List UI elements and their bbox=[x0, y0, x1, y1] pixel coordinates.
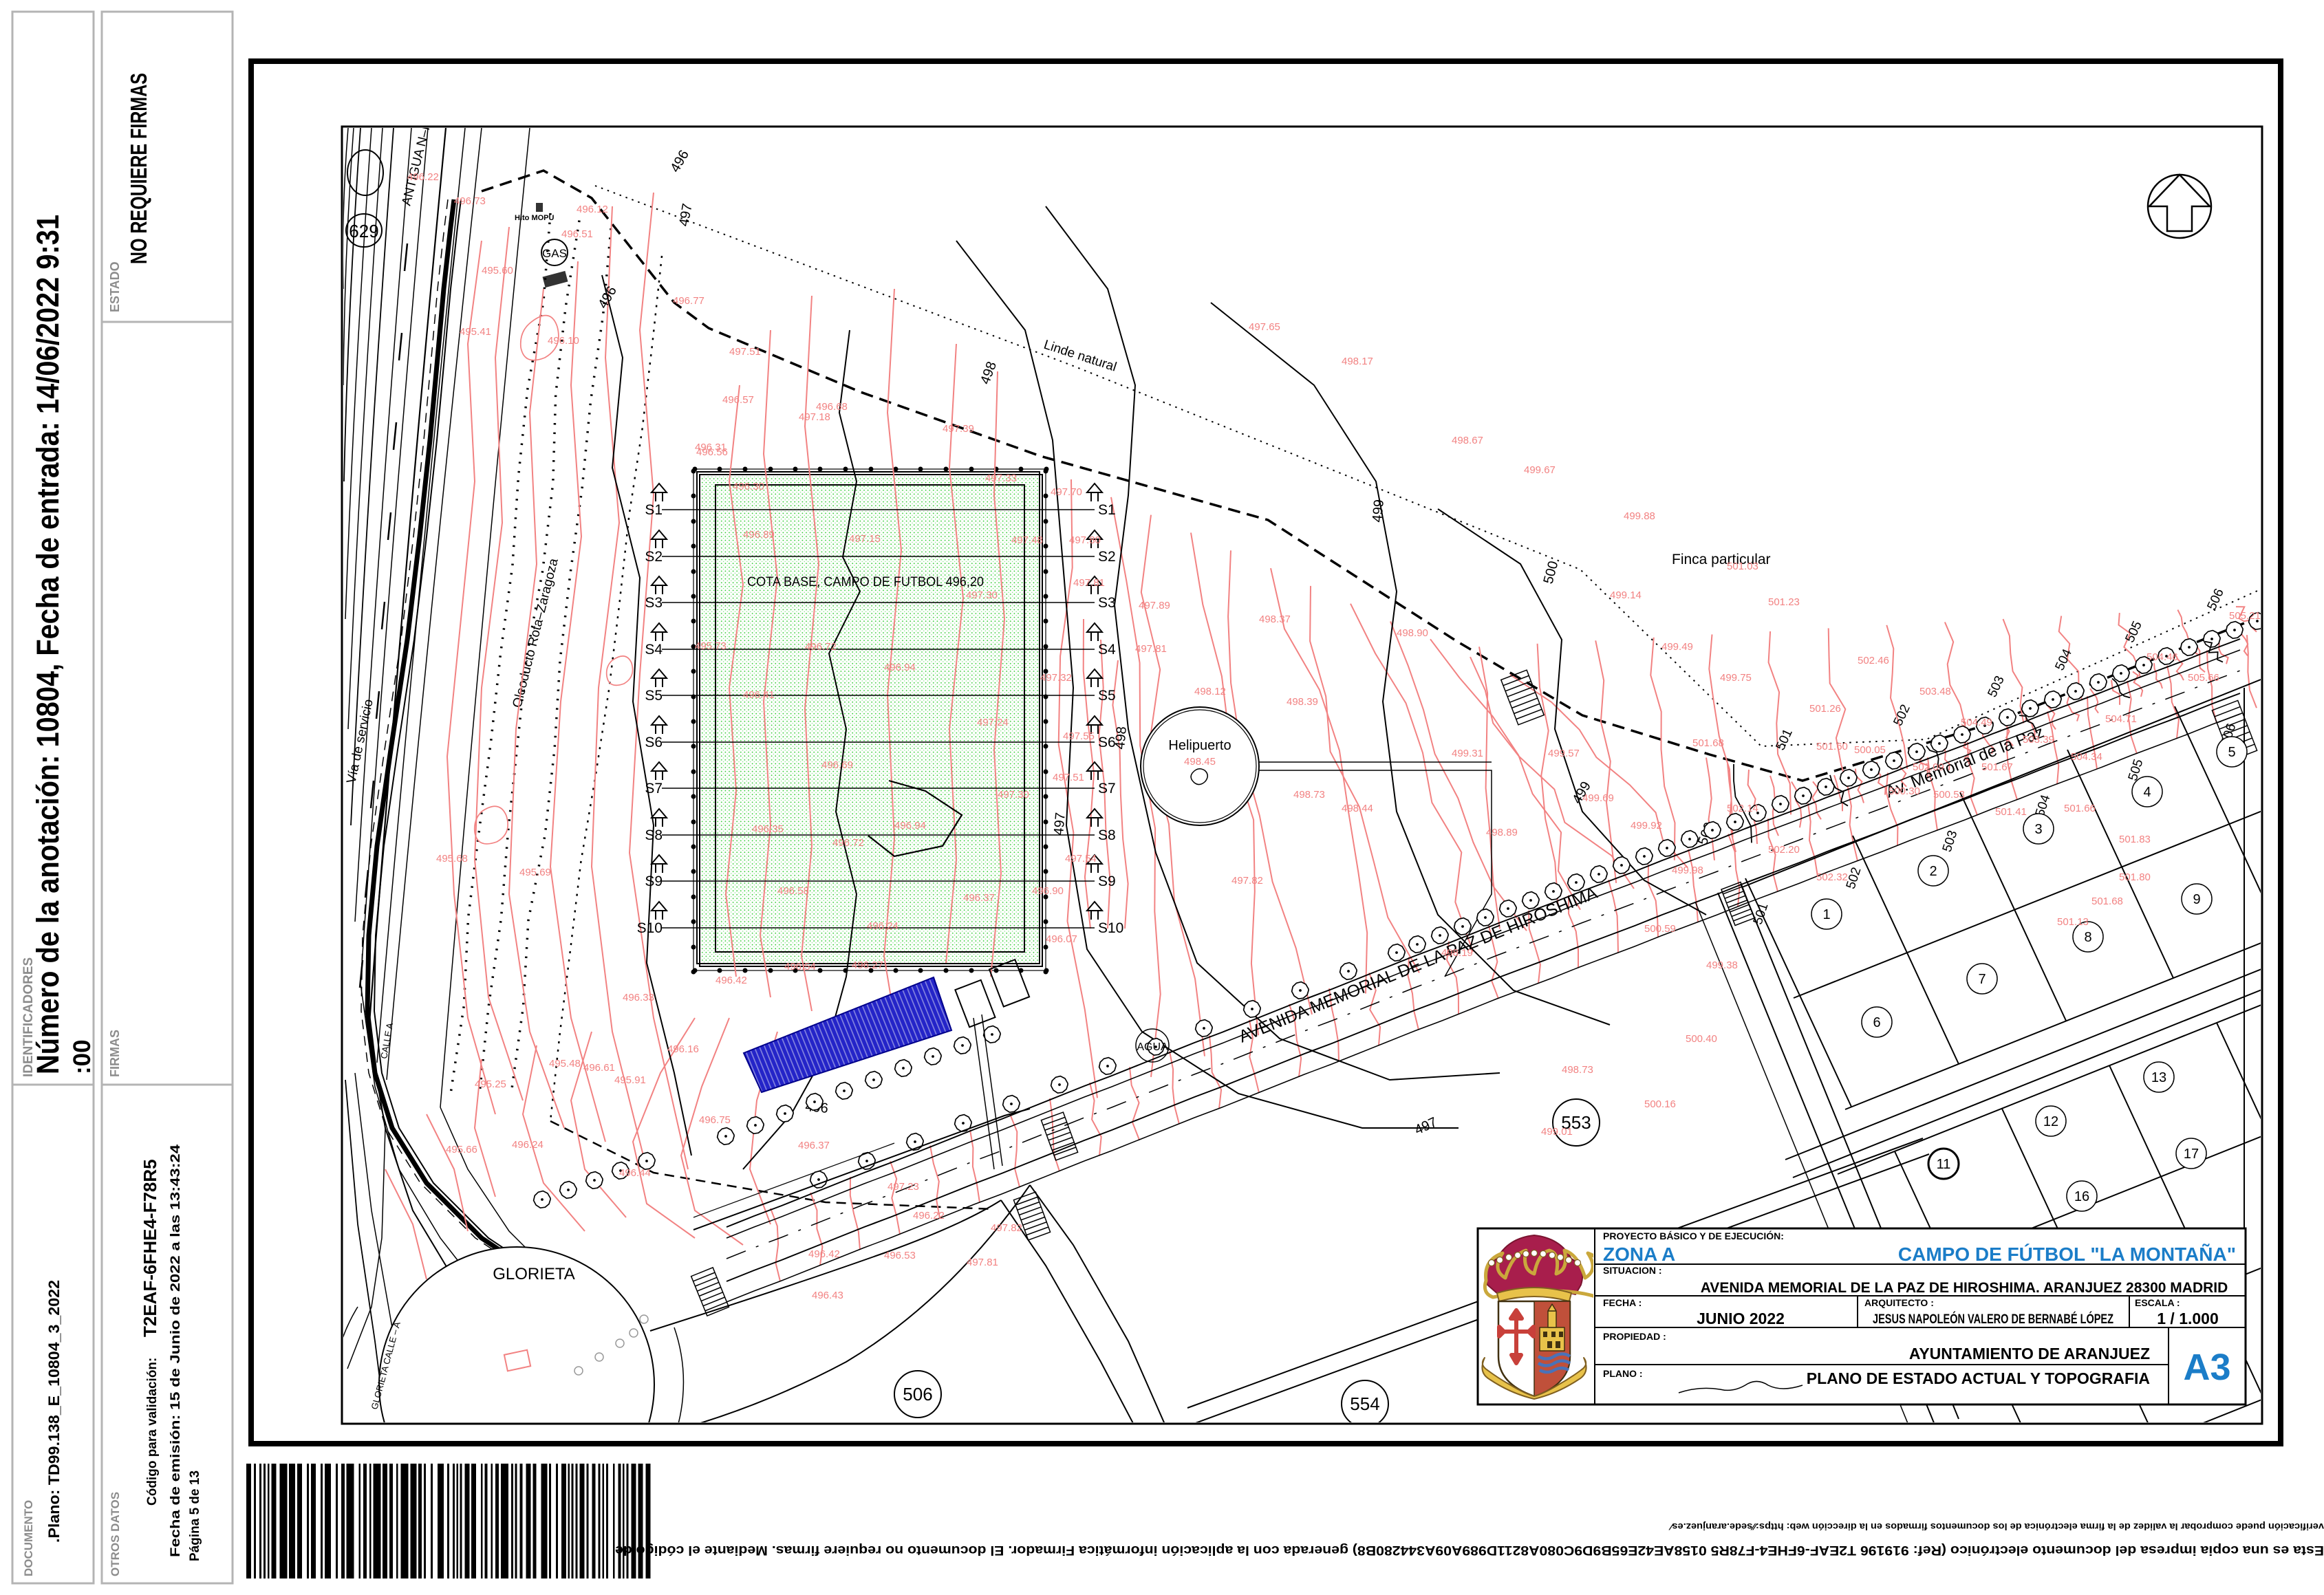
svg-text:496.07: 496.07 bbox=[1046, 933, 1077, 945]
svg-text:11: 11 bbox=[1937, 1157, 1951, 1172]
svg-text:FECHA :: FECHA : bbox=[1603, 1297, 1642, 1308]
svg-text:505.66: 505.66 bbox=[2188, 672, 2219, 684]
svg-text:497.82: 497.82 bbox=[1231, 875, 1263, 887]
svg-text:501.80: 501.80 bbox=[2119, 871, 2151, 883]
svg-text:497.51: 497.51 bbox=[1053, 772, 1084, 783]
svg-text::00: :00 bbox=[69, 1039, 96, 1074]
svg-text:499.14: 499.14 bbox=[1610, 589, 1642, 601]
svg-text:496.44: 496.44 bbox=[619, 1167, 651, 1179]
svg-text:495.60: 495.60 bbox=[482, 265, 513, 276]
svg-text:501.26: 501.26 bbox=[1809, 703, 1841, 715]
svg-text:ESTADO: ESTADO bbox=[108, 261, 122, 312]
svg-text:496.72: 496.72 bbox=[805, 641, 837, 653]
svg-text:Código para validación:: Código para validación: bbox=[145, 1358, 160, 1506]
svg-text:496.90: 496.90 bbox=[1032, 885, 1064, 897]
svg-text:496.30: 496.30 bbox=[733, 481, 764, 492]
svg-text:499.75: 499.75 bbox=[1720, 672, 1752, 684]
svg-text:496.43: 496.43 bbox=[812, 1290, 843, 1301]
svg-text:496.61: 496.61 bbox=[583, 1062, 615, 1074]
svg-text:501.13: 501.13 bbox=[2057, 916, 2089, 928]
svg-text:497.81: 497.81 bbox=[967, 1257, 998, 1268]
svg-text:497.81: 497.81 bbox=[1073, 577, 1105, 589]
svg-text:504.34: 504.34 bbox=[2071, 751, 2102, 763]
svg-text:502.09: 502.09 bbox=[1913, 761, 1944, 773]
svg-text:501.60: 501.60 bbox=[1816, 741, 1848, 752]
svg-text:503.39: 503.39 bbox=[2023, 734, 2054, 746]
svg-text:4: 4 bbox=[2143, 785, 2151, 800]
svg-text:498.45: 498.45 bbox=[1184, 756, 1216, 768]
svg-text:Fecha de emisión: 15 de Junio: Fecha de emisión: 15 de Junio de 2022 a … bbox=[169, 1144, 183, 1557]
svg-text:12: 12 bbox=[2043, 1114, 2058, 1129]
svg-text:COTA BASE, CAMPO DE FUTBOL 496: COTA BASE, CAMPO DE FUTBOL 496,20 bbox=[747, 575, 984, 589]
svg-text:PLANO :: PLANO : bbox=[1603, 1368, 1643, 1379]
svg-text:499.49: 499.49 bbox=[1661, 641, 1693, 653]
svg-text:501.67: 501.67 bbox=[1981, 761, 2013, 773]
svg-text:A3: A3 bbox=[2183, 1347, 2230, 1388]
svg-text:499.98: 499.98 bbox=[1672, 865, 1703, 876]
svg-text:496.77: 496.77 bbox=[673, 295, 704, 307]
svg-text:506: 506 bbox=[903, 1384, 932, 1404]
svg-text:495.73: 495.73 bbox=[695, 640, 727, 652]
svg-text:16: 16 bbox=[2074, 1189, 2089, 1204]
svg-text:PROPIEDAD :: PROPIEDAD : bbox=[1603, 1331, 1666, 1342]
svg-text:497.18: 497.18 bbox=[799, 411, 830, 423]
svg-text:496.24: 496.24 bbox=[867, 920, 899, 932]
svg-text:6: 6 bbox=[1873, 1015, 1880, 1030]
svg-text:496.37: 496.37 bbox=[798, 1140, 830, 1151]
svg-text:498.67: 498.67 bbox=[1452, 435, 1483, 446]
svg-text:495.48: 495.48 bbox=[549, 1058, 581, 1070]
svg-text:499.92: 499.92 bbox=[1631, 820, 1662, 832]
svg-text:497.39: 497.39 bbox=[943, 423, 974, 435]
svg-text:497.82: 497.82 bbox=[991, 1222, 1022, 1234]
svg-text:496.51: 496.51 bbox=[561, 228, 593, 240]
svg-text:S1: S1 bbox=[645, 502, 663, 518]
svg-text:497: 497 bbox=[1051, 812, 1068, 836]
svg-text:504.46: 504.46 bbox=[2147, 651, 2178, 663]
svg-text:AGUA: AGUA bbox=[1137, 1041, 1168, 1053]
svg-text:497.33: 497.33 bbox=[985, 473, 1017, 484]
svg-text:AYUNTAMIENTO DE ARANJUEZ: AYUNTAMIENTO DE ARANJUEZ bbox=[1909, 1345, 2150, 1363]
svg-text:498.44: 498.44 bbox=[1342, 803, 1373, 814]
svg-text:2: 2 bbox=[1929, 864, 1937, 879]
svg-text:NO REQUIERE FIRMAS: NO REQUIERE FIRMAS bbox=[126, 73, 151, 264]
svg-text:497.65: 497.65 bbox=[1249, 321, 1280, 333]
svg-text:499.88: 499.88 bbox=[1624, 510, 1655, 522]
svg-text:496.12: 496.12 bbox=[577, 204, 608, 215]
svg-text:503.48: 503.48 bbox=[1919, 686, 1951, 697]
svg-text:JESUS NAPOLEÓN VALERO DE BERNA: JESUS NAPOLEÓN VALERO DE BERNABÉ LÓPEZ bbox=[1873, 1312, 2113, 1327]
svg-text:501.66: 501.66 bbox=[2064, 803, 2096, 814]
svg-text:AVENIDA MEMORIAL DE LA PAZ DE: AVENIDA MEMORIAL DE LA PAZ DE HIROSHIMA.… bbox=[1701, 1280, 2228, 1296]
svg-text:verificación puede comprobar l: verificación puede comprobar la validez … bbox=[1668, 1521, 2324, 1532]
svg-text:Hito MOPU: Hito MOPU bbox=[515, 214, 554, 222]
svg-text:3: 3 bbox=[2034, 822, 2042, 837]
svg-text:1 / 1.000: 1 / 1.000 bbox=[2157, 1310, 2219, 1327]
svg-text:S3: S3 bbox=[645, 595, 663, 611]
svg-text:500.53: 500.53 bbox=[1933, 789, 1965, 801]
svg-text:497.30: 497.30 bbox=[998, 789, 1029, 801]
svg-text:500.05: 500.05 bbox=[1854, 744, 1886, 756]
svg-text:502.46: 502.46 bbox=[1858, 655, 1889, 666]
svg-text:496.75: 496.75 bbox=[699, 1114, 731, 1126]
svg-text:PROYECTO BÁSICO Y DE EJECUCIÓN: PROYECTO BÁSICO Y DE EJECUCIÓN: bbox=[1603, 1230, 1784, 1241]
svg-text:496.58: 496.58 bbox=[777, 885, 809, 897]
svg-text:501.68: 501.68 bbox=[2091, 896, 2123, 907]
svg-text:495.91: 495.91 bbox=[614, 1074, 646, 1086]
svg-text:S2: S2 bbox=[645, 549, 663, 565]
svg-text:S5: S5 bbox=[1098, 688, 1116, 704]
svg-text:Esta es una copia impresa del: Esta es una copia impresa del documento … bbox=[615, 1543, 2324, 1557]
svg-text:495.41: 495.41 bbox=[460, 326, 491, 338]
svg-text:498.90: 498.90 bbox=[1397, 627, 1428, 639]
svg-text:497.54: 497.54 bbox=[1065, 853, 1097, 865]
svg-text:SITUACION :: SITUACION : bbox=[1603, 1265, 1662, 1276]
svg-text:S8: S8 bbox=[1098, 827, 1116, 843]
svg-text:502.32: 502.32 bbox=[1816, 871, 1848, 883]
svg-text:502.20: 502.20 bbox=[1768, 844, 1800, 856]
svg-text:498.89: 498.89 bbox=[1486, 827, 1518, 838]
svg-text:499.38: 499.38 bbox=[1706, 959, 1738, 971]
svg-text:ZONA A: ZONA A bbox=[1603, 1244, 1675, 1265]
svg-text:OTROS DATOS: OTROS DATOS bbox=[109, 1492, 122, 1576]
svg-text:497.30: 497.30 bbox=[966, 589, 998, 601]
svg-text:502.14: 502.14 bbox=[1727, 803, 1758, 814]
svg-text:497.51: 497.51 bbox=[729, 346, 761, 358]
svg-text:496.37: 496.37 bbox=[963, 892, 995, 904]
svg-text:S8: S8 bbox=[645, 827, 663, 843]
svg-text:497.32: 497.32 bbox=[1040, 672, 1072, 684]
svg-text:Página 5 de 13: Página 5 de 13 bbox=[188, 1471, 202, 1561]
svg-text:497.48: 497.48 bbox=[1011, 534, 1043, 546]
svg-text:497.70: 497.70 bbox=[1051, 486, 1082, 498]
svg-text:495.25: 495.25 bbox=[475, 1078, 506, 1090]
svg-text:499.57: 499.57 bbox=[1548, 748, 1580, 759]
svg-text:497.55: 497.55 bbox=[1063, 730, 1095, 742]
svg-text:495.69: 495.69 bbox=[519, 867, 551, 878]
svg-text:S4: S4 bbox=[1098, 642, 1116, 658]
svg-text:501.41: 501.41 bbox=[1995, 806, 2027, 818]
svg-text:495.68: 495.68 bbox=[436, 853, 468, 865]
svg-text:499.31: 499.31 bbox=[1452, 748, 1483, 759]
svg-text:Helipuerto: Helipuerto bbox=[1168, 738, 1231, 753]
svg-text:GLORIETA: GLORIETA bbox=[493, 1265, 575, 1283]
svg-text:S6: S6 bbox=[645, 735, 663, 750]
svg-text:500.30: 500.30 bbox=[1889, 785, 1920, 797]
svg-text:497.89: 497.89 bbox=[1139, 600, 1170, 611]
svg-text:496.73: 496.73 bbox=[454, 195, 486, 207]
svg-text:497.80: 497.80 bbox=[1069, 534, 1101, 546]
svg-text:501.23: 501.23 bbox=[1768, 596, 1800, 608]
svg-text:JUNIO 2022: JUNIO 2022 bbox=[1697, 1310, 1785, 1327]
svg-text:GAS: GAS bbox=[542, 247, 567, 260]
svg-text:495.66: 495.66 bbox=[446, 1144, 477, 1155]
svg-text:500.16: 500.16 bbox=[1644, 1098, 1676, 1110]
svg-text:S1: S1 bbox=[1098, 502, 1116, 518]
svg-text:629: 629 bbox=[349, 221, 378, 241]
svg-text:504.71: 504.71 bbox=[2105, 713, 2137, 725]
svg-text:S9: S9 bbox=[1098, 874, 1116, 889]
svg-text:S10: S10 bbox=[637, 920, 663, 936]
svg-text:S10: S10 bbox=[1098, 920, 1123, 936]
svg-text:496.94: 496.94 bbox=[894, 820, 926, 832]
svg-text:DOCUMENTO: DOCUMENTO bbox=[22, 1500, 35, 1576]
svg-text:.Plano: TD99.138_E_10804_3_202: .Plano: TD99.138_E_10804_3_2022 bbox=[45, 1280, 63, 1543]
svg-text:497.24: 497.24 bbox=[977, 717, 1009, 728]
svg-text:496.41: 496.41 bbox=[743, 689, 775, 701]
svg-text:1: 1 bbox=[1822, 907, 1830, 922]
svg-text:496.72: 496.72 bbox=[832, 837, 864, 849]
svg-text:554: 554 bbox=[1350, 1393, 1379, 1414]
svg-text:499.01: 499.01 bbox=[1541, 1126, 1573, 1138]
svg-text:499: 499 bbox=[1370, 499, 1387, 523]
svg-text:S4: S4 bbox=[645, 642, 663, 658]
svg-text:497.23: 497.23 bbox=[887, 1181, 919, 1193]
svg-text:499.69: 499.69 bbox=[1582, 792, 1614, 804]
svg-text:496.42: 496.42 bbox=[808, 1248, 840, 1260]
svg-text:PLANO DE ESTADO ACTUAL Y TOPOG: PLANO DE ESTADO ACTUAL Y TOPOGRAFIA bbox=[1807, 1369, 2150, 1387]
svg-text:500.40: 500.40 bbox=[1686, 1033, 1717, 1045]
svg-text:496.68: 496.68 bbox=[816, 401, 848, 413]
svg-text:498.12: 498.12 bbox=[1194, 686, 1226, 697]
svg-text:7: 7 bbox=[1978, 972, 1986, 987]
svg-text:505.21: 505.21 bbox=[2229, 610, 2261, 622]
svg-text:CAMPO DE FÚTBOL "LA MONTAÑA": CAMPO DE FÚTBOL "LA MONTAÑA" bbox=[1898, 1244, 2236, 1265]
svg-text:496.33: 496.33 bbox=[623, 992, 654, 1003]
svg-text:497.81: 497.81 bbox=[1135, 643, 1167, 655]
svg-text:9: 9 bbox=[2193, 892, 2200, 907]
svg-text:498.19: 498.19 bbox=[1441, 947, 1473, 959]
svg-text:496.35: 496.35 bbox=[752, 823, 784, 835]
svg-text:17: 17 bbox=[2184, 1147, 2199, 1162]
svg-text:S7: S7 bbox=[645, 781, 663, 796]
svg-text:496.89: 496.89 bbox=[743, 529, 775, 541]
svg-text:497.15: 497.15 bbox=[849, 533, 881, 545]
svg-text:496.22: 496.22 bbox=[407, 171, 439, 183]
svg-text:Número de la anotación: 10804,: Número de la anotación: 10804, Fecha de … bbox=[30, 215, 65, 1074]
svg-text:498.17: 498.17 bbox=[1342, 356, 1373, 367]
svg-text:496.27: 496.27 bbox=[852, 959, 883, 971]
svg-text:496.24: 496.24 bbox=[512, 1139, 544, 1151]
svg-text:496.69: 496.69 bbox=[821, 759, 853, 771]
svg-text:T2EAF-6FHE4-F78R5: T2EAF-6FHE4-F78R5 bbox=[140, 1159, 160, 1337]
svg-text:496.16: 496.16 bbox=[667, 1043, 699, 1055]
svg-text:ARQUITECTO :: ARQUITECTO : bbox=[1864, 1297, 1934, 1308]
svg-text:496.53: 496.53 bbox=[884, 1250, 916, 1261]
svg-text:498.37: 498.37 bbox=[1259, 614, 1291, 625]
svg-text:496.22: 496.22 bbox=[913, 1210, 945, 1222]
svg-text:S2: S2 bbox=[1098, 549, 1116, 565]
svg-text:496.10: 496.10 bbox=[548, 335, 579, 347]
svg-text:498.73: 498.73 bbox=[1293, 789, 1325, 801]
svg-text:496.42: 496.42 bbox=[716, 975, 747, 986]
svg-text:498.73: 498.73 bbox=[1562, 1064, 1593, 1076]
svg-text:496.94: 496.94 bbox=[884, 662, 916, 673]
svg-text:500.59: 500.59 bbox=[1644, 923, 1676, 935]
svg-text:S9: S9 bbox=[645, 874, 663, 889]
svg-text:504.49: 504.49 bbox=[1961, 717, 1992, 728]
svg-text:5: 5 bbox=[2228, 745, 2235, 760]
svg-text:499.67: 499.67 bbox=[1524, 464, 1556, 476]
svg-text:FIRMAS: FIRMAS bbox=[108, 1030, 122, 1077]
svg-text:S6: S6 bbox=[1098, 735, 1116, 750]
svg-text:13: 13 bbox=[2151, 1070, 2166, 1085]
svg-text:ESCALA :: ESCALA : bbox=[2135, 1297, 2180, 1308]
svg-text:501.03: 501.03 bbox=[1727, 561, 1758, 572]
svg-text:8: 8 bbox=[2084, 930, 2091, 945]
svg-text:501.68: 501.68 bbox=[1692, 737, 1724, 749]
svg-text:496.57: 496.57 bbox=[722, 394, 754, 406]
svg-text:496.31: 496.31 bbox=[695, 442, 727, 453]
svg-text:S5: S5 bbox=[645, 688, 663, 704]
svg-text:S7: S7 bbox=[1098, 781, 1116, 796]
svg-text:501.83: 501.83 bbox=[2119, 834, 2151, 845]
svg-text:496.54: 496.54 bbox=[784, 961, 816, 973]
svg-text:S3: S3 bbox=[1098, 595, 1116, 611]
svg-text:498.39: 498.39 bbox=[1287, 696, 1318, 708]
